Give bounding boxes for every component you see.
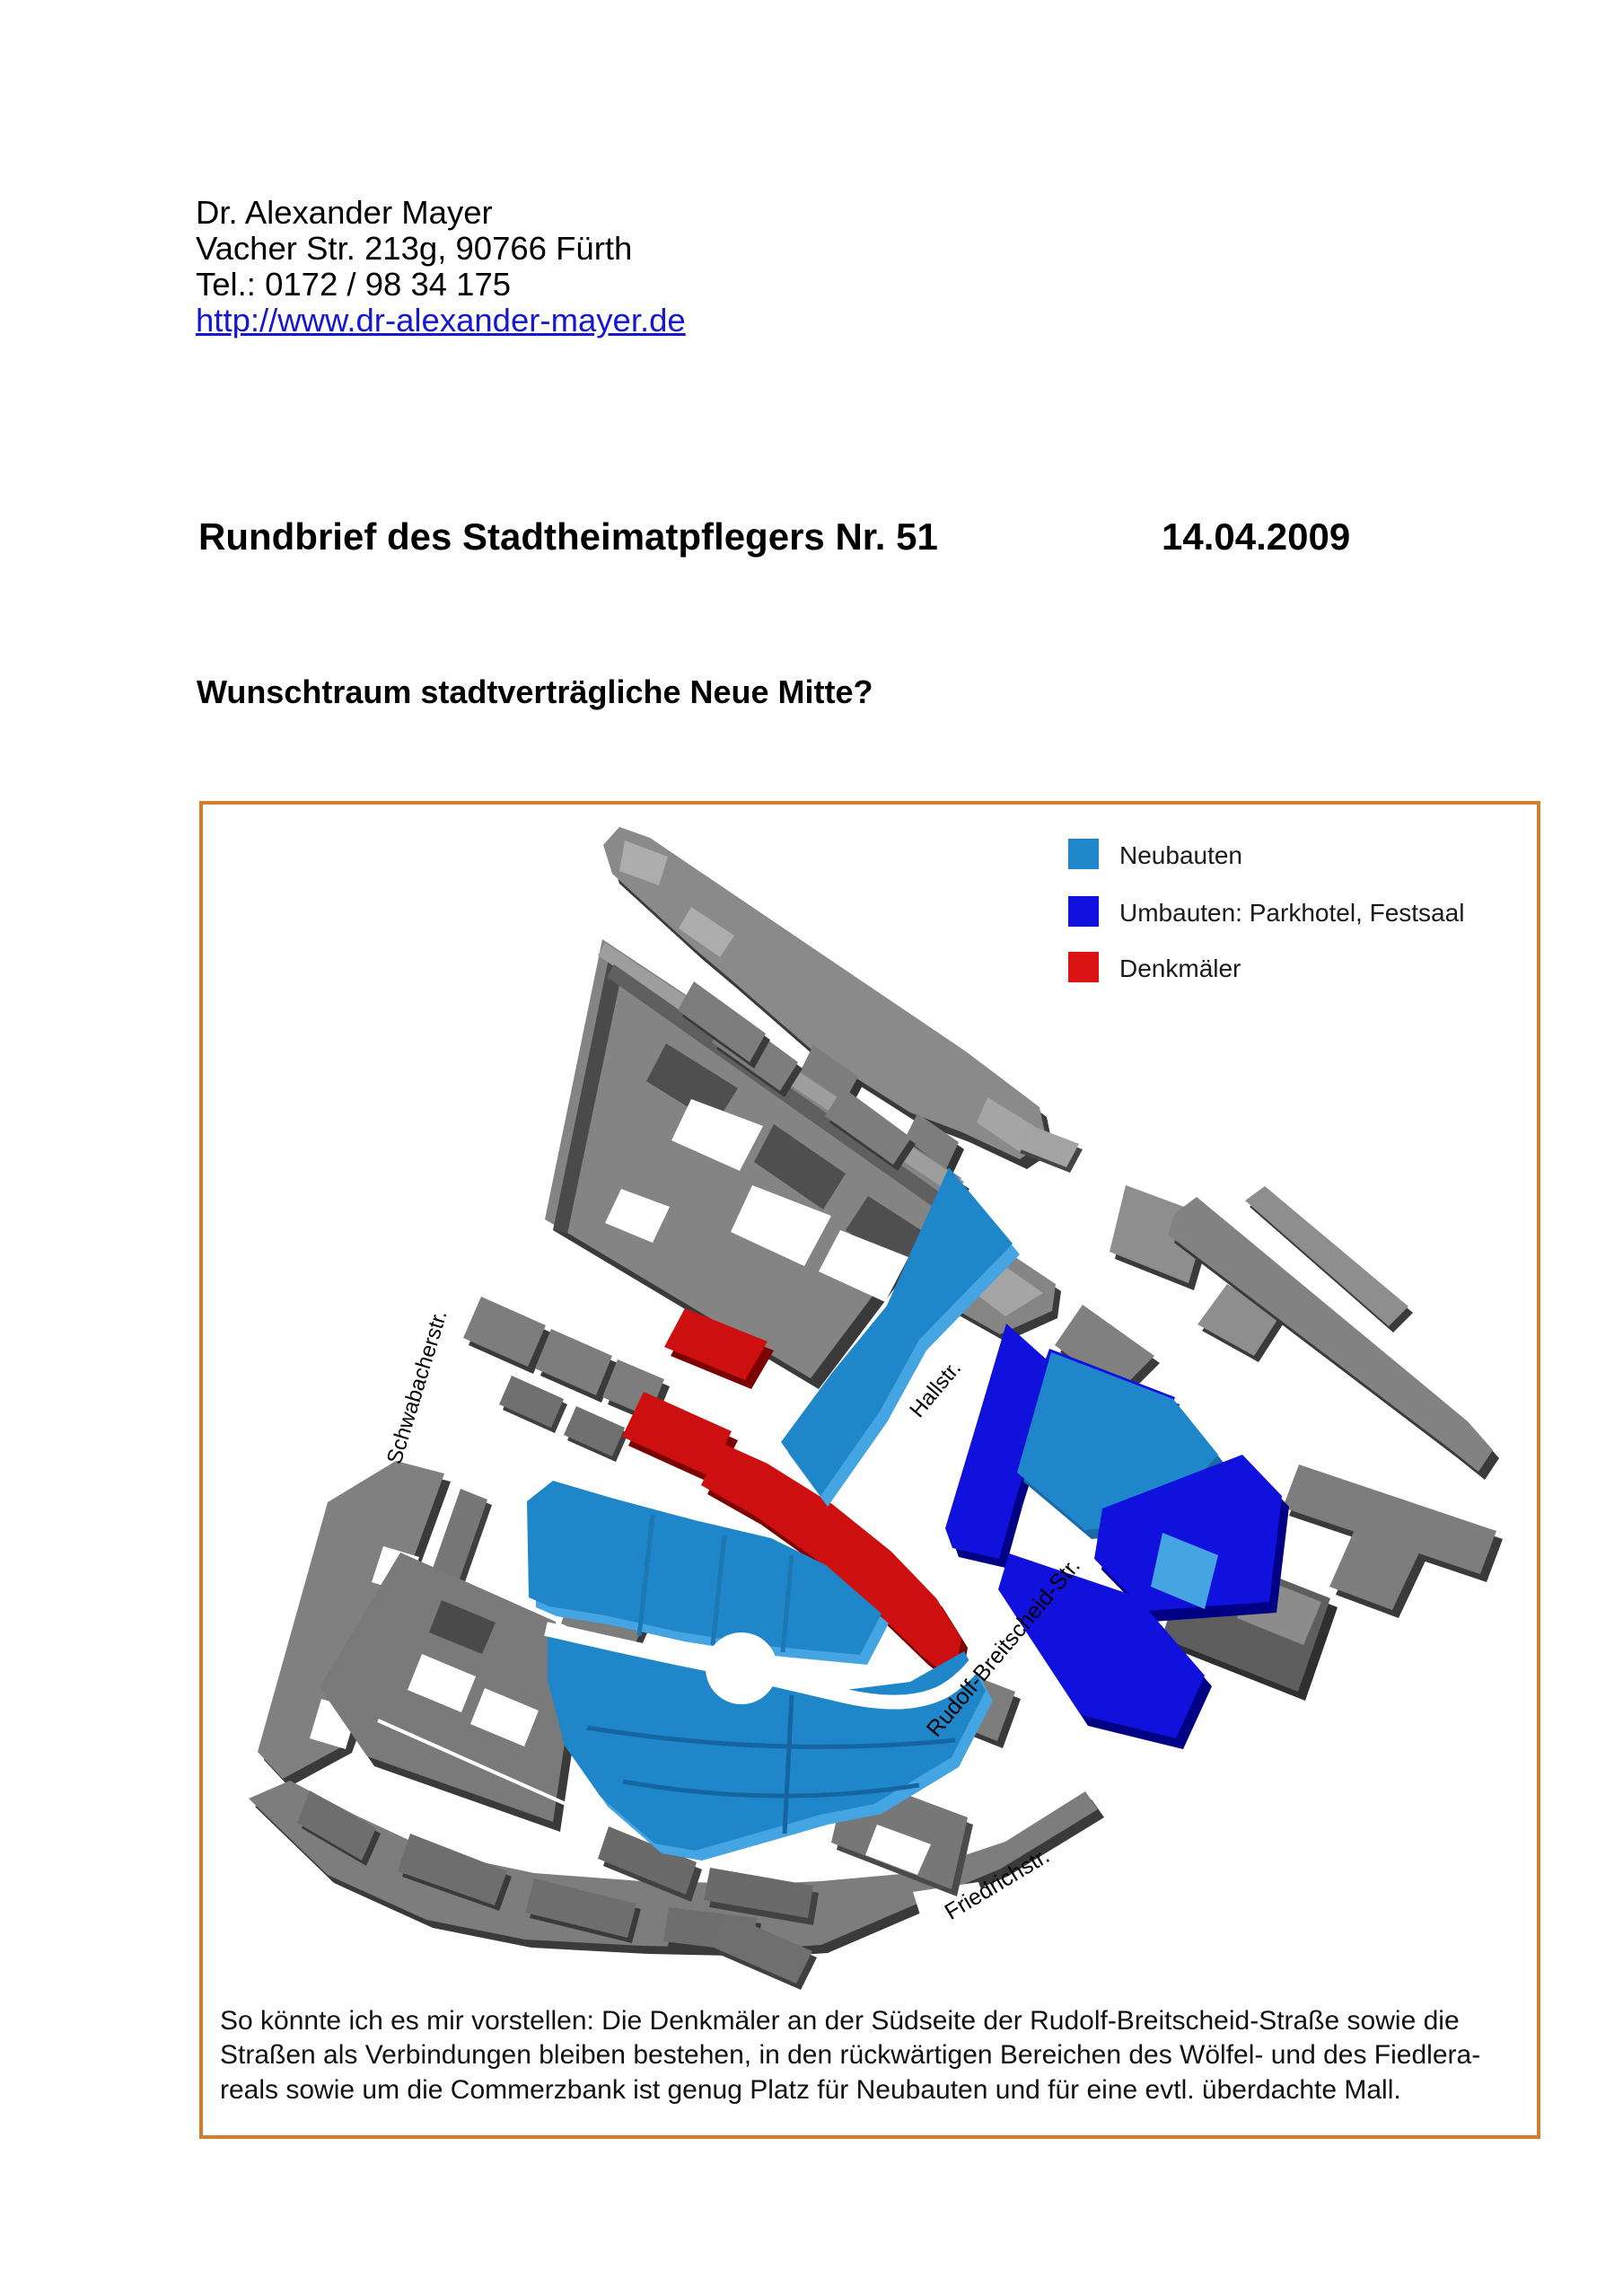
svg-text:Schwabacherstr.: Schwabacherstr. bbox=[382, 1307, 452, 1467]
svg-text:Denkmäler: Denkmäler bbox=[1119, 954, 1241, 982]
svg-text:Straßen als Verbindungen bleib: Straßen als Verbindungen bleiben bestehe… bbox=[220, 2040, 1480, 2070]
svg-text:reals sowie um die Commerzbank: reals sowie um die Commerzbank ist genug… bbox=[220, 2075, 1401, 2105]
svg-text:Umbauten: Parkhotel, Festsaal: Umbauten: Parkhotel, Festsaal bbox=[1119, 899, 1464, 927]
svg-text:Neubauten: Neubauten bbox=[1119, 841, 1242, 869]
svg-text:So könnte ich es mir vorstelle: So könnte ich es mir vorstellen: Die Den… bbox=[220, 2006, 1460, 2036]
